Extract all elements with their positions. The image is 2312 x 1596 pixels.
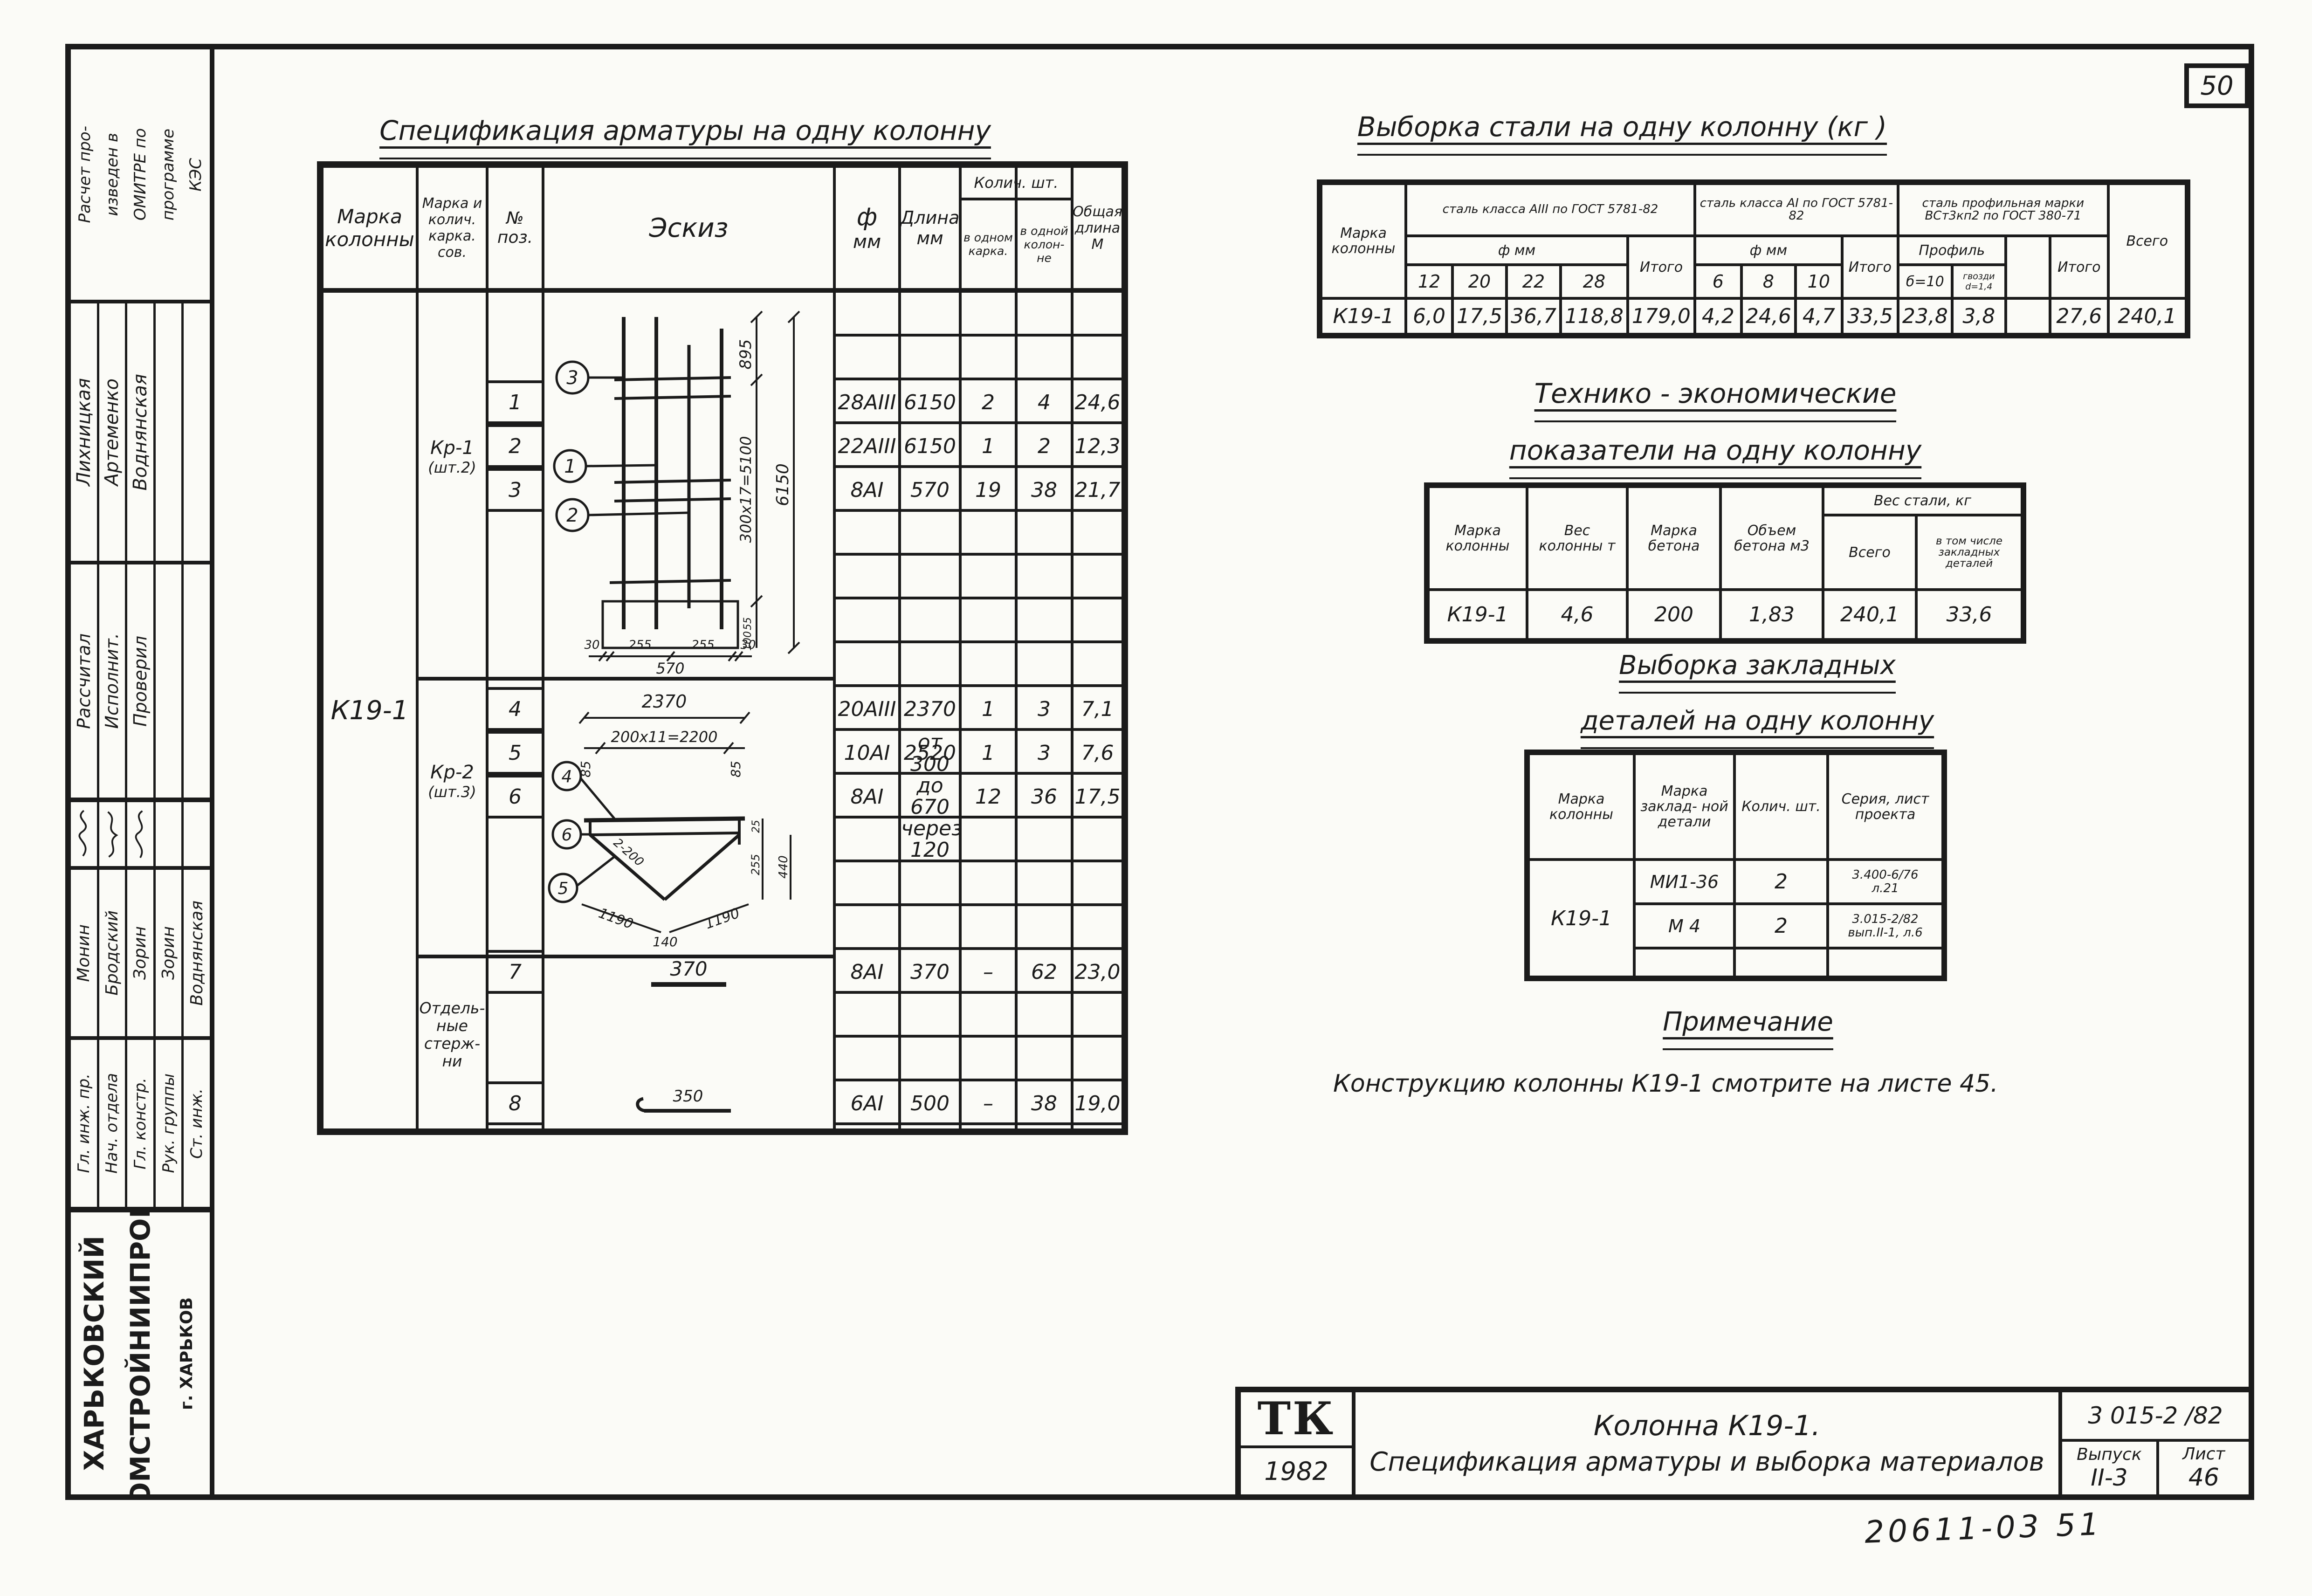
header-mark: Марка колонны	[323, 168, 416, 288]
tech-economic-table: Марка колонны Вес колонны т Марка бетона…	[1424, 482, 2026, 644]
steel-val: 179,0	[1628, 298, 1695, 336]
program-note-line: ОМИТРЕ по	[131, 128, 150, 220]
header-detail-mark: Марка заклад- ной детали	[1634, 752, 1734, 860]
callout-4: 4	[562, 767, 572, 786]
dim-diag: 2-200	[611, 836, 647, 869]
embed-empty	[1828, 948, 1944, 978]
header-mark: Марка колонны	[1320, 182, 1406, 298]
tk-logo: ТК	[1241, 1392, 1352, 1448]
divider	[323, 288, 1122, 293]
pos-number: 1	[489, 380, 542, 424]
group-kr1: Кр-1(шт.2)	[419, 410, 486, 503]
program-note-line: КЭС	[186, 158, 205, 192]
header-steel-total: Всего	[1823, 515, 1916, 590]
embed-table-title: Выборка закладных деталей на одну колонн…	[1506, 650, 2009, 749]
dim-55: 55	[742, 617, 754, 630]
stamp-top-names-band: Лихницкая Артеменко Воднянская	[71, 303, 210, 564]
spec-row-6: 8АI от 300 до 670 через 120 1236 17,5	[836, 775, 1122, 819]
spec-table: Марка колонны Марка и колич. карка. сов.…	[317, 161, 1128, 1135]
pos-number: 4	[489, 687, 542, 731]
dim-30b: 30	[740, 638, 756, 652]
tech-title-line1: Технико - экономические	[1534, 378, 1897, 422]
pos-number: 7	[489, 950, 542, 994]
archive-number: 20611-03 51	[1864, 1506, 2103, 1550]
stamp-name: Зорин	[159, 926, 178, 980]
stamp-top-roles-band: Рассчитал Исполнит. Проверил	[71, 564, 210, 802]
header-itogo-2: Итого	[1842, 236, 1898, 298]
tech-steel-total: 240,1	[1823, 590, 1916, 641]
steel-table-title: Выборка стали на одну колонну (кг )	[1326, 111, 1918, 156]
stamp-name: Зорин	[131, 926, 150, 980]
program-note-line: Расчет про-	[76, 126, 94, 223]
sketch-frame-kr1: 895 300x17=5100 55 100 6150 30 255 255 3…	[544, 303, 833, 676]
spec-row-4: 20АIII2370 13 7,1	[836, 687, 1122, 731]
signature-scribble	[99, 806, 125, 862]
dim-895: 895	[736, 339, 755, 370]
page-number: 50	[2200, 71, 2233, 101]
spec-row-8: 6АI500 –38 19,0	[836, 1081, 1122, 1125]
header-itogo-3: Итого	[2050, 236, 2108, 298]
title-block-logo-cell: ТК 1982	[1241, 1392, 1356, 1494]
program-note-band: Расчет про- изведен в ОМИТРЕ по программ…	[71, 49, 210, 303]
stamp-bottom-names-band: Монин Бродский Зорин Зорин Воднянская	[71, 870, 210, 1040]
profile-b10: б=10	[1898, 265, 1952, 298]
stamp-name: Воднянская	[187, 901, 206, 1006]
dia-22: 22	[1507, 265, 1561, 298]
spec-row-7: 8АI370 –62 23,0	[836, 950, 1122, 994]
header-diameter: ф мм	[836, 168, 898, 288]
tech-weight: 4,6	[1527, 590, 1627, 641]
dia-12: 12	[1406, 265, 1452, 298]
steel-val: 240,1	[2108, 298, 2188, 336]
stamp-role: Гл. констр.	[131, 1078, 150, 1169]
dim-350: 350	[673, 1087, 703, 1106]
sketch-hooked-bar: 350	[544, 1081, 833, 1125]
organization-name-line1: ХАРЬКОВСКИЙ	[78, 1236, 110, 1471]
spec-row-2: 22АIII6150 12 12,3	[836, 424, 1122, 468]
steel-val: 6,0	[1406, 298, 1452, 336]
steel-val: 17,5	[1452, 298, 1507, 336]
steel-val: 27,6	[2050, 298, 2108, 336]
stamp-role: Рассчитал	[74, 633, 94, 729]
steel-row-mark: К19-1	[1320, 298, 1406, 336]
stamp-name: Артеменко	[101, 378, 123, 486]
note-text: Конструкцию колонны К19-1 смотрите на ли…	[1333, 1070, 2116, 1098]
dim-2370: 2370	[642, 691, 687, 712]
header-steel-a1: сталь класса АI по ГОСТ 5781-82	[1695, 182, 1898, 236]
signature-scribble	[71, 806, 97, 862]
dim-1190b: 1190	[703, 905, 742, 933]
steel-val: 23,8	[1898, 298, 1952, 336]
signatures-band	[71, 802, 210, 870]
embed-title-line1: Выборка закладных	[1619, 650, 1896, 694]
dim-25: 25	[750, 820, 762, 833]
embed-detail: М 4	[1634, 904, 1734, 948]
callout-2: 2	[566, 505, 578, 526]
dia-8: 8	[1741, 265, 1796, 298]
header-steel-embed: в том числе закладных деталей	[1916, 515, 2023, 590]
dia-28: 28	[1561, 265, 1628, 298]
dim-255b: 255	[691, 638, 715, 652]
spec-row-3: 8АI570 1938 21,7	[836, 468, 1122, 512]
embed-qty: 2	[1734, 860, 1828, 904]
tech-steel-embed: 33,6	[1916, 590, 2023, 641]
dim-440: 440	[777, 855, 791, 879]
pos-number: 6	[489, 775, 542, 819]
program-note-line: программе	[159, 129, 178, 220]
stamp-role: Ст. инж.	[187, 1088, 206, 1159]
header-qty: Колич. шт.	[1734, 752, 1828, 860]
header-vsego: Всего	[2108, 182, 2188, 298]
header-empty	[2006, 236, 2050, 298]
dim-140: 140	[653, 934, 677, 949]
dia-6: 6	[1695, 265, 1741, 298]
dim-255a: 255	[628, 638, 652, 652]
header-dia-mm-2: ф мм	[1695, 236, 1842, 265]
stamp-role: Исполнит.	[102, 633, 122, 729]
dim-255: 255	[749, 854, 762, 875]
tech-grade: 200	[1627, 590, 1720, 641]
sidebar-stamp-column: Расчет про- изведен в ОМИТРЕ по программ…	[71, 49, 214, 1494]
header-steel-profile: сталь профильная марки ВСт3кп2 по ГОСТ 3…	[1898, 182, 2108, 236]
spec-row-5: 10АI2520 13 7,6	[836, 731, 1122, 775]
dia-10: 10	[1796, 265, 1842, 298]
steel-val: 3,8	[1952, 298, 2006, 336]
stamp-name: Бродский	[103, 910, 122, 996]
title-block: ТК 1982 Колонна К19-1. Спецификация арма…	[1235, 1387, 2254, 1500]
header-volume: Объем бетона м3	[1720, 485, 1823, 590]
note-title: Примечание	[1613, 1007, 1883, 1050]
tech-volume: 1,83	[1720, 590, 1823, 641]
pos-number: 2	[489, 424, 542, 468]
stamp-name: Лихницкая	[73, 378, 95, 486]
header-itogo-1: Итого	[1628, 236, 1695, 298]
page-number-box: 50	[2184, 63, 2250, 108]
steel-val: 36,7	[1507, 298, 1561, 336]
embed-detail: МИ1-36	[1634, 860, 1734, 904]
dim-6150: 6150	[773, 463, 792, 506]
steel-table-title-text: Выборка стали на одну колонну (кг )	[1357, 111, 1887, 156]
note-title-text: Примечание	[1663, 1007, 1833, 1050]
callout-6: 6	[562, 826, 572, 845]
issue-cell: Выпуск II-3	[2062, 1442, 2159, 1494]
program-note-line: изведен в	[103, 133, 122, 216]
embed-mark: К19-1	[1527, 860, 1634, 978]
title-block-line1: Колонна К19-1.	[1594, 1410, 1821, 1442]
dim-85b: 85	[728, 761, 743, 777]
divider	[419, 677, 833, 681]
embedded-details-table: Марка колонны Марка заклад- ной детали К…	[1524, 750, 1947, 981]
dim-570: 570	[656, 660, 684, 676]
stamp-role: Рук. группы	[159, 1073, 178, 1173]
header-total-length: Общая длина М	[1073, 168, 1122, 288]
header-steel-weight: Вес стали, кг	[1823, 485, 2023, 515]
embed-empty	[1634, 948, 1734, 978]
drawing-sheet: 50 Расчет про- изведен в ОМИТРЕ по прогр…	[0, 0, 2312, 1596]
column-mark: К19-1	[323, 293, 416, 1128]
dim-step: 300x17=5100	[737, 436, 755, 543]
title-block-title-cell: Колонна К19-1. Спецификация арматуры и в…	[1356, 1392, 2058, 1494]
spec-table-title: Спецификация арматуры на одну колонну	[326, 115, 1044, 159]
dim-30a: 30	[584, 638, 599, 652]
embed-series: 3.015-2/82 вып.II-1, л.6	[1828, 904, 1944, 948]
steel-selection-table: Марка колонны сталь класса АIII по ГОСТ …	[1317, 179, 2190, 338]
title-block-line2: Спецификация арматуры и выборка материал…	[1369, 1447, 2044, 1477]
stamp-role: Проверил	[130, 636, 151, 727]
header-steel-a3: сталь класса АIII по ГОСТ 5781-82	[1406, 182, 1695, 236]
dim-1190a: 1190	[596, 905, 635, 933]
stamp-bottom-roles-band: Гл. инж. пр. Нач. отдела Гл. констр. Рук…	[71, 1040, 210, 1212]
header-qty-group: Колич. шт.	[962, 168, 1071, 198]
sketch-straight-bar: 370	[544, 950, 833, 994]
callout-5: 5	[558, 879, 569, 898]
steel-val: 33,5	[1842, 298, 1898, 336]
header-grade: Марка бетона	[1627, 485, 1720, 590]
group-single-rods: Отдель-ные стерж-ни	[419, 974, 486, 1095]
organization-city: г. ХАРЬКОВ	[177, 1297, 196, 1410]
steel-val: 24,6	[1741, 298, 1796, 336]
stamp-role: Гл. инж. пр.	[75, 1073, 93, 1173]
sketch-frame-kr2: 2370 85 200x11=2200 85 25 255 440 2-200 …	[544, 681, 833, 951]
stamp-name: Воднянская	[130, 374, 151, 491]
tech-title-line2: показатели на одну колонну	[1509, 434, 1921, 479]
pos-number: 3	[489, 468, 542, 512]
embed-series: 3.400-6/76 л.21	[1828, 860, 1944, 904]
stamp-role: Нач. отдела	[103, 1073, 121, 1174]
steel-val	[2006, 298, 2050, 336]
header-qty-per-column: в одной колон-не	[1018, 200, 1071, 288]
tech-mark: К19-1	[1427, 590, 1527, 641]
callout-3: 3	[566, 367, 578, 389]
embed-qty: 2	[1734, 904, 1828, 948]
steel-val: 4,2	[1695, 298, 1741, 336]
steel-val: 118,8	[1561, 298, 1628, 336]
header-mark: Марка колонны	[1527, 752, 1634, 860]
embed-title-line2: деталей на одну колонну	[1581, 706, 1934, 749]
header-length: Длина мм	[901, 168, 959, 288]
pos-number: 5	[489, 731, 542, 775]
callout-1: 1	[564, 456, 576, 477]
signature-scribble	[127, 806, 153, 862]
title-block-year: 1982	[1241, 1448, 1352, 1494]
tech-table-title: Технико - экономические показатели на од…	[1408, 378, 2023, 479]
header-sketch: Эскиз	[544, 168, 833, 288]
steel-val: 4,7	[1796, 298, 1842, 336]
group-kr2: Кр-2(шт.3)	[419, 735, 486, 828]
organization-band: ХАРЬКОВСКИЙ ПРОМСТРОЙНИИПРОЕКТ г. ХАРЬКО…	[71, 1212, 210, 1494]
sheet-cell: Лист 46	[2159, 1442, 2249, 1494]
spec-table-title-text: Спецификация арматуры на одну колонну	[379, 115, 991, 159]
embed-empty	[1734, 948, 1828, 978]
header-profile: Профиль	[1898, 236, 2006, 265]
spec-row-1: 28АIII6150 24 24,6	[836, 380, 1122, 424]
title-block-doc-cell: 3 015-2 /82 Выпуск II-3 Лист 46	[2058, 1392, 2249, 1494]
header-pos: № поз.	[489, 168, 542, 288]
header-qty-per-frame: в одном карка.	[962, 200, 1015, 288]
doc-number: 3 015-2 /82	[2062, 1392, 2249, 1442]
organization-name-line2: ПРОМСТРОЙНИИПРОЕКТ	[124, 1212, 156, 1494]
header-series: Серия, лист проекта	[1828, 752, 1944, 860]
header-dia-mm-1: ф мм	[1406, 236, 1628, 265]
dim-step2: 200x11=2200	[611, 728, 718, 746]
profile-nails: гвозди d=1,4	[1952, 265, 2006, 298]
stamp-name: Монин	[74, 924, 93, 982]
pos-number: 8	[489, 1081, 542, 1125]
dia-20: 20	[1452, 265, 1507, 298]
header-frame-mark: Марка и колич. карка. сов.	[419, 168, 486, 288]
header-weight: Вес колонны т	[1527, 485, 1627, 590]
header-mark: Марка колонны	[1427, 485, 1527, 590]
